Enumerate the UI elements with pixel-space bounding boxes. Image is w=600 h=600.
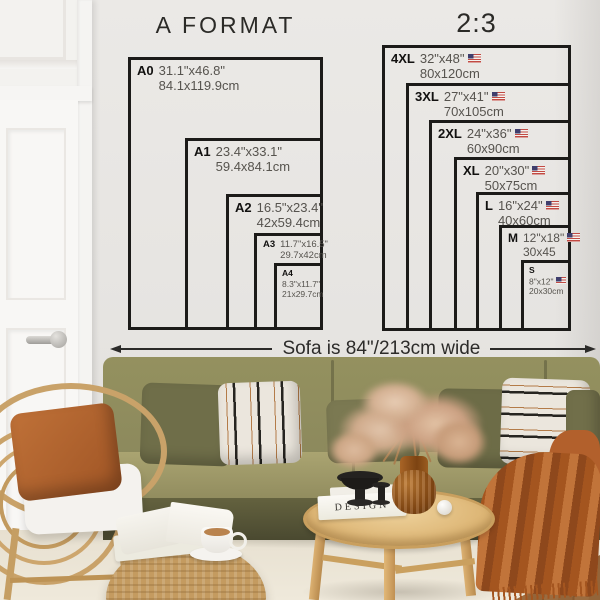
- size-label-xl: XL 20"x30"50x75cm: [457, 160, 568, 194]
- size-code: M: [508, 232, 518, 260]
- us-flag-icon: [492, 92, 505, 101]
- size-label-m: M 12"x18"30x45: [502, 228, 568, 260]
- dried-flowers: [430, 418, 488, 466]
- size-inches: 16.5"x23.4": [257, 201, 323, 216]
- size-cm: 70x105cm: [444, 105, 505, 120]
- size-code: 4XL: [391, 52, 415, 82]
- black-bowl-base: [347, 499, 373, 506]
- size-label-2xl: 2XL 24"x36"60x90cm: [432, 123, 568, 157]
- size-inches: 32"x48": [420, 51, 465, 66]
- coffee-surface: [204, 528, 230, 536]
- candle-holder-base: [372, 500, 390, 505]
- us-flag-icon: [468, 54, 481, 63]
- arrow-line: [121, 348, 272, 350]
- size-code: A1: [194, 145, 211, 175]
- size-cm: 29.7x42cm: [280, 251, 328, 262]
- size-inches: 8"x12": [529, 276, 553, 286]
- size-cm: 60x90cm: [467, 142, 528, 157]
- poster-size-guide-mockup: A FORMAT A0 31.1"x46.8"84.1x119.9cm A1 2…: [0, 0, 600, 600]
- decor-sphere: [437, 500, 452, 515]
- us-flag-icon: [532, 166, 545, 175]
- size-code: 3XL: [415, 90, 439, 120]
- size-code: A2: [235, 201, 252, 231]
- size-cm: 42x59.4cm: [257, 216, 323, 231]
- size-code: A0: [137, 64, 154, 94]
- size-box-a4: A4 8.3"x11.7"21x29.7cm: [274, 263, 323, 330]
- door-handle-rosette: [50, 331, 67, 348]
- size-inches: 24"x36": [467, 126, 512, 141]
- amber-vase: [392, 470, 436, 514]
- size-label-3xl: 3XL 27"x41"70x105cm: [409, 86, 568, 120]
- size-box-s: S 8"x12"20x30cm: [521, 260, 571, 331]
- striped-pillow: [218, 381, 303, 466]
- us-flag-icon: [567, 233, 580, 242]
- size-cm: 80x120cm: [420, 67, 481, 82]
- ratio-chart-title: 2:3: [382, 8, 571, 39]
- size-inches: 31.1"x46.8": [159, 64, 240, 79]
- size-inches: 23.4"x33.1": [216, 145, 290, 160]
- dried-flowers: [360, 380, 430, 424]
- wall-panel-molding: [0, 0, 66, 60]
- size-code: A4: [282, 269, 320, 279]
- size-code: A3: [263, 240, 275, 262]
- size-code: L: [485, 199, 493, 229]
- us-flag-icon: [515, 129, 528, 138]
- us-flag-icon: [546, 201, 559, 210]
- arrow-left-icon: [110, 345, 121, 353]
- size-code: S: [529, 266, 568, 276]
- dried-flowers: [328, 430, 380, 470]
- size-inches: 20"x30": [485, 163, 530, 178]
- size-code: 2XL: [438, 127, 462, 157]
- size-label-l: L 16"x24"40x60cm: [479, 195, 568, 229]
- a-format-chart-title: A FORMAT: [128, 12, 323, 39]
- cup-handle: [229, 532, 247, 550]
- arrow-right-icon: [585, 345, 596, 353]
- size-label-a2: A2 16.5"x23.4"42x59.4cm: [229, 197, 320, 231]
- door-panel-upper: [6, 128, 66, 300]
- terracotta-pillow: [9, 402, 123, 502]
- door-frame-top: [0, 86, 92, 101]
- size-label-s: S 8"x12"20x30cm: [524, 263, 568, 297]
- size-cm: 21x29.7cm: [282, 290, 320, 300]
- size-label-a3: A3 11.7"x16.5"29.7x42cm: [257, 236, 320, 262]
- size-label-4xl: 4XL 32"x48"80x120cm: [385, 48, 568, 82]
- size-cm: 84.1x119.9cm: [159, 79, 240, 94]
- size-label-a1: A1 23.4"x33.1"59.4x84.1cm: [188, 141, 320, 175]
- size-cm: 20x30cm: [529, 287, 568, 297]
- size-cm: 30x45: [523, 246, 580, 260]
- size-code: XL: [463, 164, 480, 194]
- arrow-line: [490, 348, 585, 350]
- size-cm: 59.4x84.1cm: [216, 160, 290, 175]
- us-flag-icon: [556, 277, 566, 284]
- size-inches: 16"x24": [498, 198, 543, 213]
- size-inches: 12"x18": [523, 231, 564, 245]
- size-label-a4: A4 8.3"x11.7"21x29.7cm: [277, 266, 320, 299]
- size-inches: 27"x41": [444, 89, 489, 104]
- size-label-a0: A0 31.1"x46.8"84.1x119.9cm: [131, 60, 320, 94]
